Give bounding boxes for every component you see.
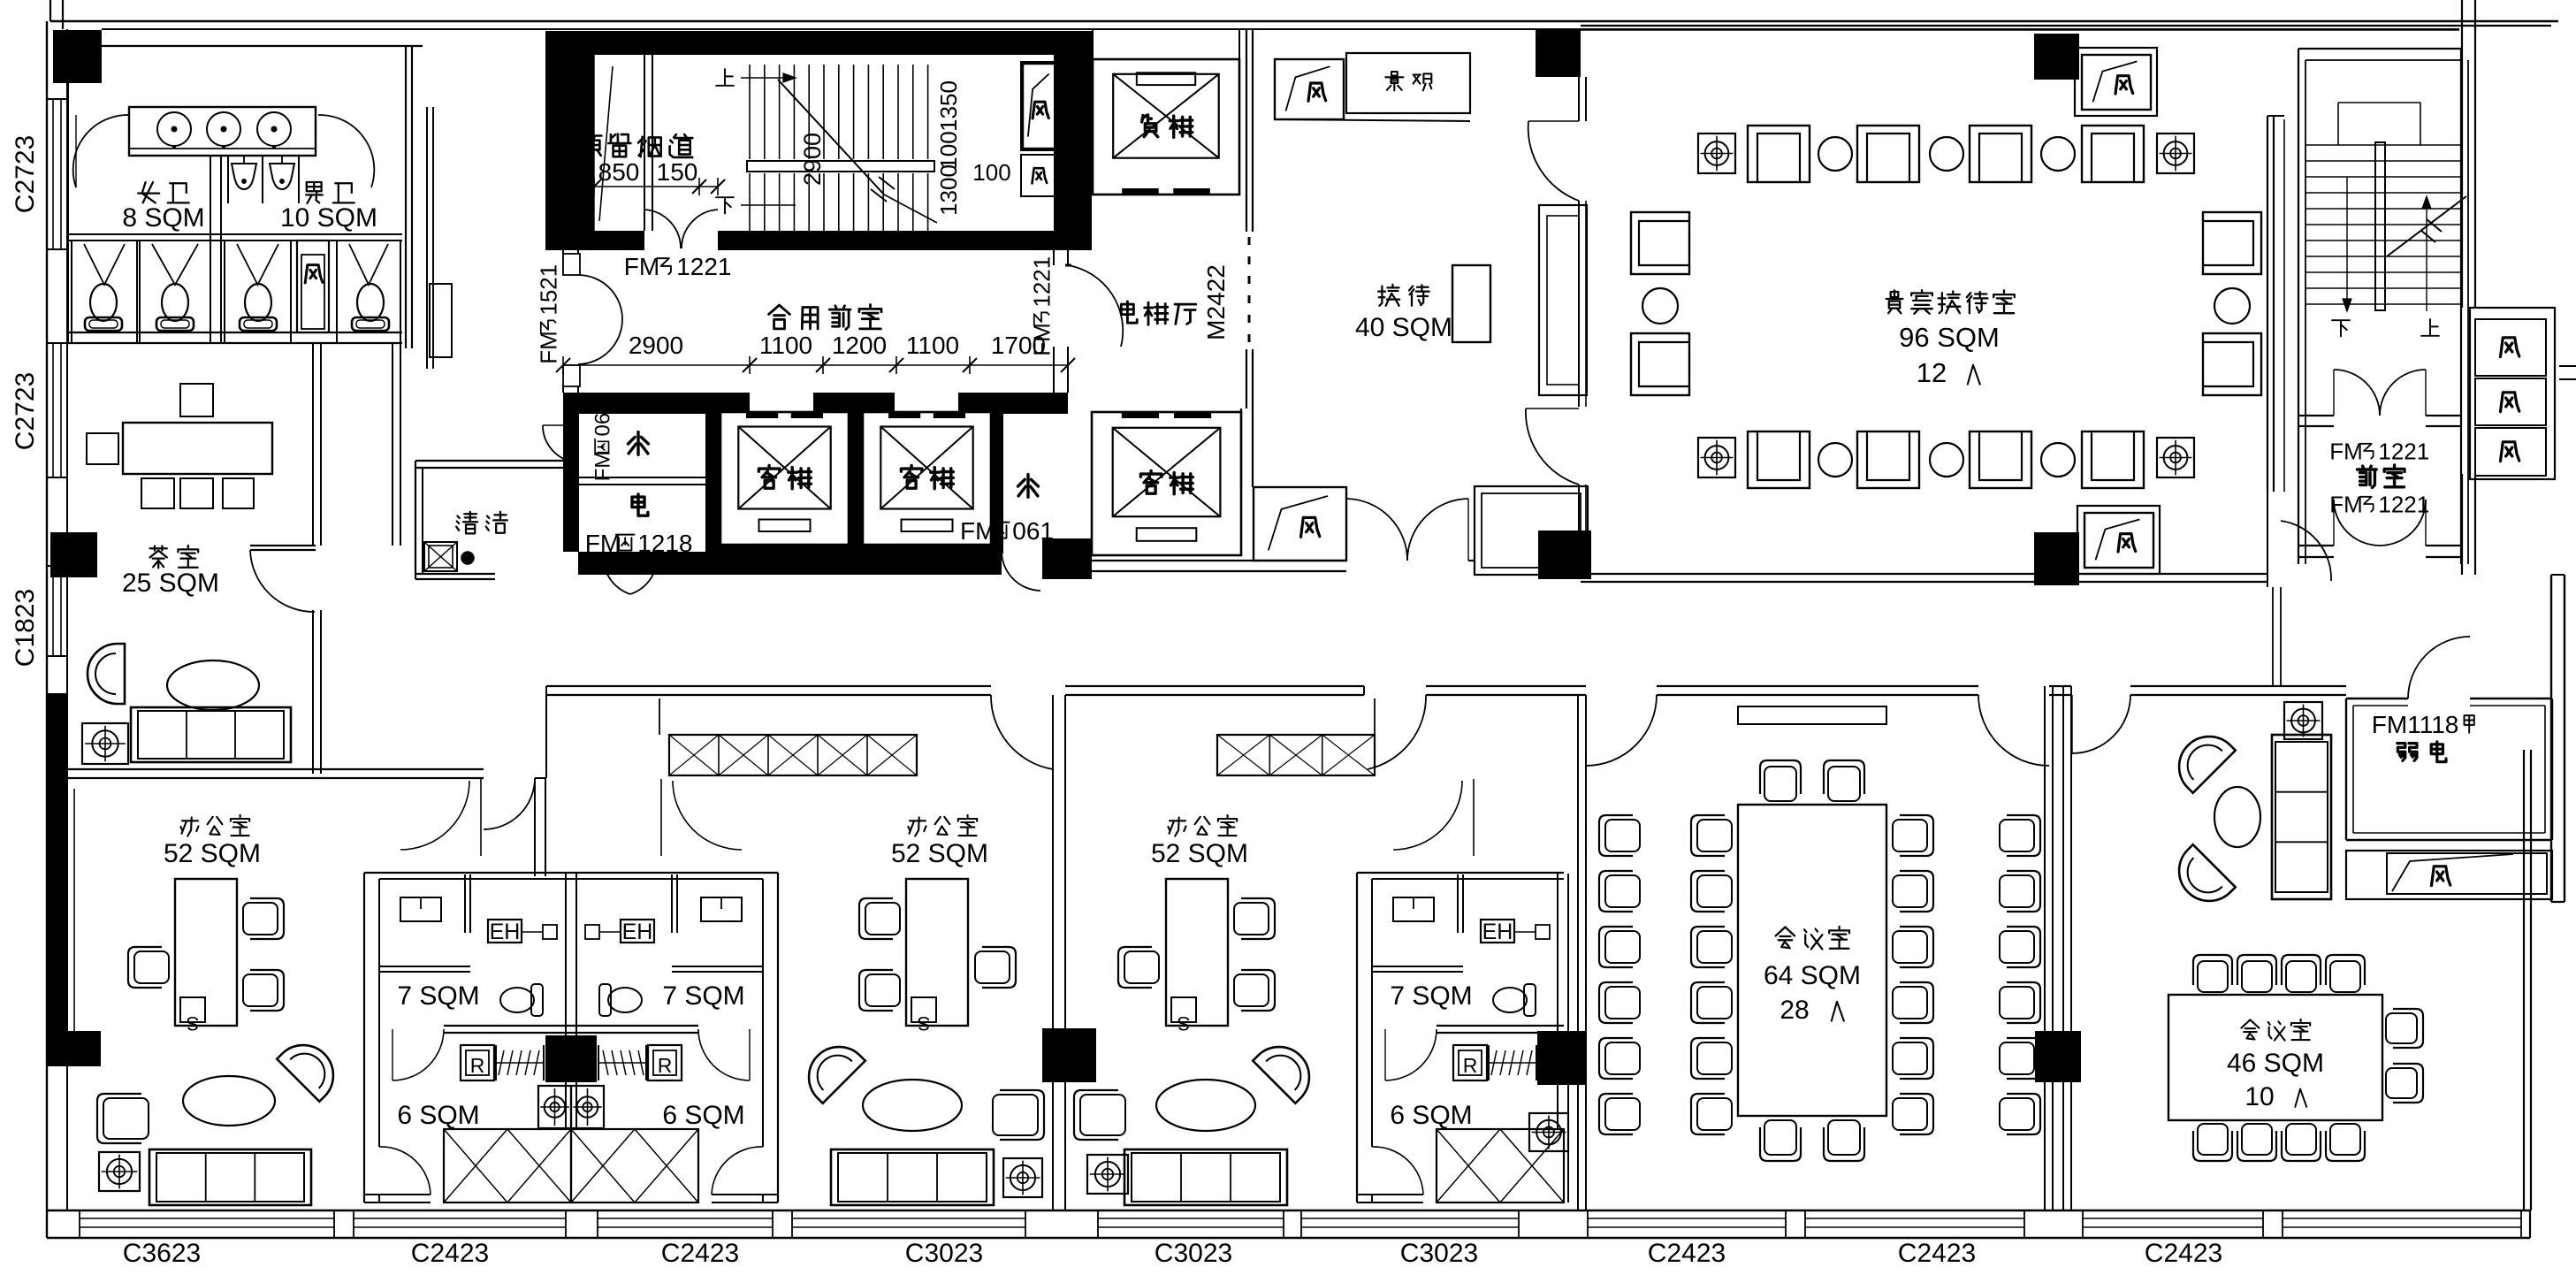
svg-text:1100: 1100 xyxy=(906,332,959,359)
svg-text:7 SQM: 7 SQM xyxy=(1390,981,1472,1011)
svg-text:150: 150 xyxy=(657,158,698,186)
svg-text:C3023: C3023 xyxy=(1400,1239,1478,1268)
svg-text:C3023: C3023 xyxy=(1155,1239,1232,1268)
svg-text:R: R xyxy=(1463,1054,1478,1077)
svg-text:1221: 1221 xyxy=(676,253,731,280)
svg-text:C2423: C2423 xyxy=(661,1239,739,1268)
svg-text:1100: 1100 xyxy=(759,332,812,359)
svg-text:C3023: C3023 xyxy=(905,1239,983,1268)
svg-text:28: 28 xyxy=(1780,996,1809,1025)
svg-text:6 SQM: 6 SQM xyxy=(1390,1101,1472,1130)
svg-text:46 SQM: 46 SQM xyxy=(2227,1049,2324,1078)
svg-text:S: S xyxy=(187,1012,200,1035)
svg-text:10 SQM: 10 SQM xyxy=(280,203,377,233)
svg-text:C2723: C2723 xyxy=(11,135,40,213)
svg-text:C2423: C2423 xyxy=(411,1239,489,1268)
svg-text:FM: FM xyxy=(2329,438,2363,464)
svg-text:64 SQM: 64 SQM xyxy=(1764,961,1861,990)
svg-text:00: 00 xyxy=(1055,184,1080,210)
svg-text:6 SQM: 6 SQM xyxy=(397,1101,479,1130)
svg-text:8 SQM: 8 SQM xyxy=(122,203,204,233)
svg-text:1350: 1350 xyxy=(935,80,962,132)
svg-text:06: 06 xyxy=(591,413,615,437)
svg-text:FM: FM xyxy=(960,517,995,545)
svg-text:52 SQM: 52 SQM xyxy=(891,839,988,868)
svg-text:FM: FM xyxy=(624,253,659,280)
svg-text:25 SQM: 25 SQM xyxy=(122,569,219,598)
svg-text:R: R xyxy=(470,1054,485,1077)
svg-text:C2423: C2423 xyxy=(1648,1239,1726,1268)
svg-text:1221: 1221 xyxy=(2378,438,2429,464)
svg-text:7 SQM: 7 SQM xyxy=(397,981,479,1011)
svg-text:FM: FM xyxy=(1028,323,1055,356)
svg-text:7 SQM: 7 SQM xyxy=(662,981,744,1011)
svg-text:1300: 1300 xyxy=(935,164,962,216)
svg-text:C3623: C3623 xyxy=(123,1239,201,1268)
svg-text:2900: 2900 xyxy=(629,332,683,359)
svg-text:S: S xyxy=(1177,1012,1191,1035)
svg-text:S: S xyxy=(918,1012,931,1035)
svg-text:6 SQM: 6 SQM xyxy=(662,1101,744,1130)
svg-text:52 SQM: 52 SQM xyxy=(1151,839,1248,868)
svg-text:FM: FM xyxy=(535,331,561,364)
svg-text:C1823: C1823 xyxy=(11,589,40,667)
svg-text:96 SQM: 96 SQM xyxy=(1899,322,2000,353)
svg-text:R: R xyxy=(658,1054,673,1077)
svg-text:40 SQM: 40 SQM xyxy=(1355,313,1452,342)
svg-text:C2423: C2423 xyxy=(2145,1239,2222,1268)
svg-text:M2422: M2422 xyxy=(1202,264,1230,340)
svg-text:C2723: C2723 xyxy=(11,372,40,450)
svg-text:FM1118: FM1118 xyxy=(2372,711,2459,738)
svg-text:1221: 1221 xyxy=(1028,256,1055,308)
svg-text:1200: 1200 xyxy=(832,332,887,359)
svg-text:850: 850 xyxy=(598,158,640,186)
svg-text:100: 100 xyxy=(935,131,962,169)
svg-text:1221: 1221 xyxy=(2378,491,2429,517)
svg-text:1521: 1521 xyxy=(535,264,561,316)
svg-text:10: 10 xyxy=(2244,1082,2274,1111)
svg-text:52 SQM: 52 SQM xyxy=(164,839,261,868)
svg-text:061: 061 xyxy=(1012,517,1054,545)
svg-text:12: 12 xyxy=(1917,357,1947,388)
svg-text:EH: EH xyxy=(622,920,653,944)
svg-text:2900: 2900 xyxy=(799,133,826,186)
svg-text:EH: EH xyxy=(1482,920,1513,944)
svg-text:EH: EH xyxy=(490,920,521,944)
svg-text:C2423: C2423 xyxy=(1898,1239,1976,1268)
svg-text:100: 100 xyxy=(972,159,1010,186)
